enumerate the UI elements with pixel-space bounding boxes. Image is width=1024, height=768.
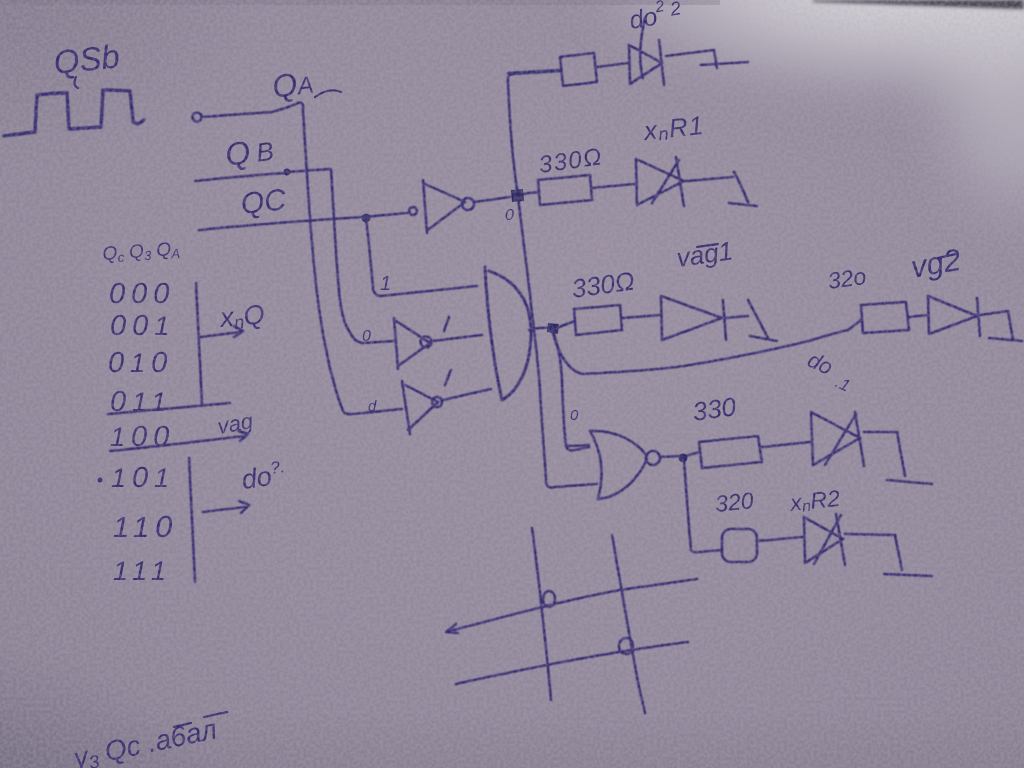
- svg-text:110: 110: [113, 509, 178, 544]
- svg-text:000: 000: [109, 278, 175, 310]
- svg-text:1: 1: [380, 273, 391, 295]
- svg-text:111: 111: [113, 556, 172, 586]
- svg-text:d: d: [368, 398, 377, 415]
- svg-text:0: 0: [362, 328, 371, 345]
- svg-text:100: 100: [110, 421, 175, 453]
- svg-text:QSb: QSb: [52, 37, 122, 81]
- svg-text:010: 010: [108, 347, 173, 379]
- svg-text:32o: 32o: [826, 263, 868, 294]
- svg-text:QC: QC: [239, 183, 288, 221]
- svg-text:001: 001: [110, 310, 175, 342]
- svg-text:330: 330: [691, 391, 739, 427]
- svg-text:011: 011: [110, 386, 172, 418]
- svg-text:101: 101: [111, 462, 175, 494]
- svg-text:0: 0: [570, 407, 579, 424]
- svg-text:320: 320: [714, 487, 755, 517]
- svg-text:0: 0: [505, 207, 514, 224]
